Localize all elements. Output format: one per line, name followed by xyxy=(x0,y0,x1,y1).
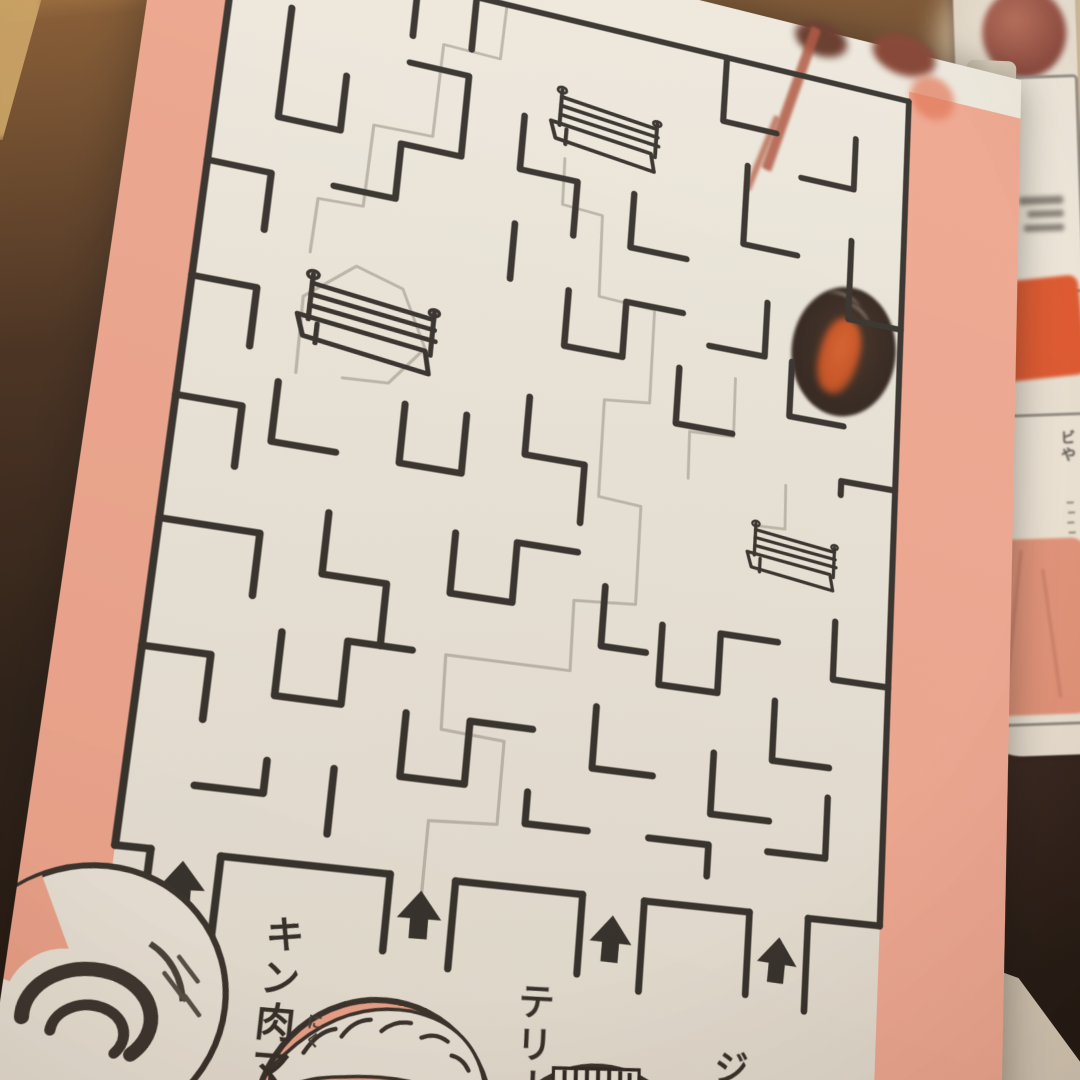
entry-label-terry: テリー xyxy=(510,981,553,1080)
fold-line xyxy=(1041,569,1062,698)
tiny-text-marks xyxy=(1067,521,1074,523)
maze-artwork xyxy=(0,0,1021,1080)
furigana-niku: にく xyxy=(299,1012,326,1050)
maze-page: キン肉マ にく テリー ジェ xyxy=(0,0,1021,1080)
striped-crest xyxy=(553,1068,640,1080)
tiny-text-marks xyxy=(1068,511,1075,513)
blurred-text xyxy=(1027,210,1063,218)
blurred-text xyxy=(1024,224,1064,232)
photo-scene: ビや xyxy=(0,0,1080,1080)
blurred-text xyxy=(1019,196,1063,206)
tiny-text-marks xyxy=(1067,501,1074,503)
comic-vertical-text: ビや xyxy=(1056,429,1078,464)
maze-walls xyxy=(101,0,909,1018)
portrait-ramen-bowl xyxy=(0,852,240,1080)
entry-label-je: ジェ xyxy=(710,1047,747,1080)
table-corner-sliver xyxy=(0,0,44,140)
tiny-text-marks xyxy=(1069,531,1076,533)
entrance-arrows xyxy=(151,857,800,986)
